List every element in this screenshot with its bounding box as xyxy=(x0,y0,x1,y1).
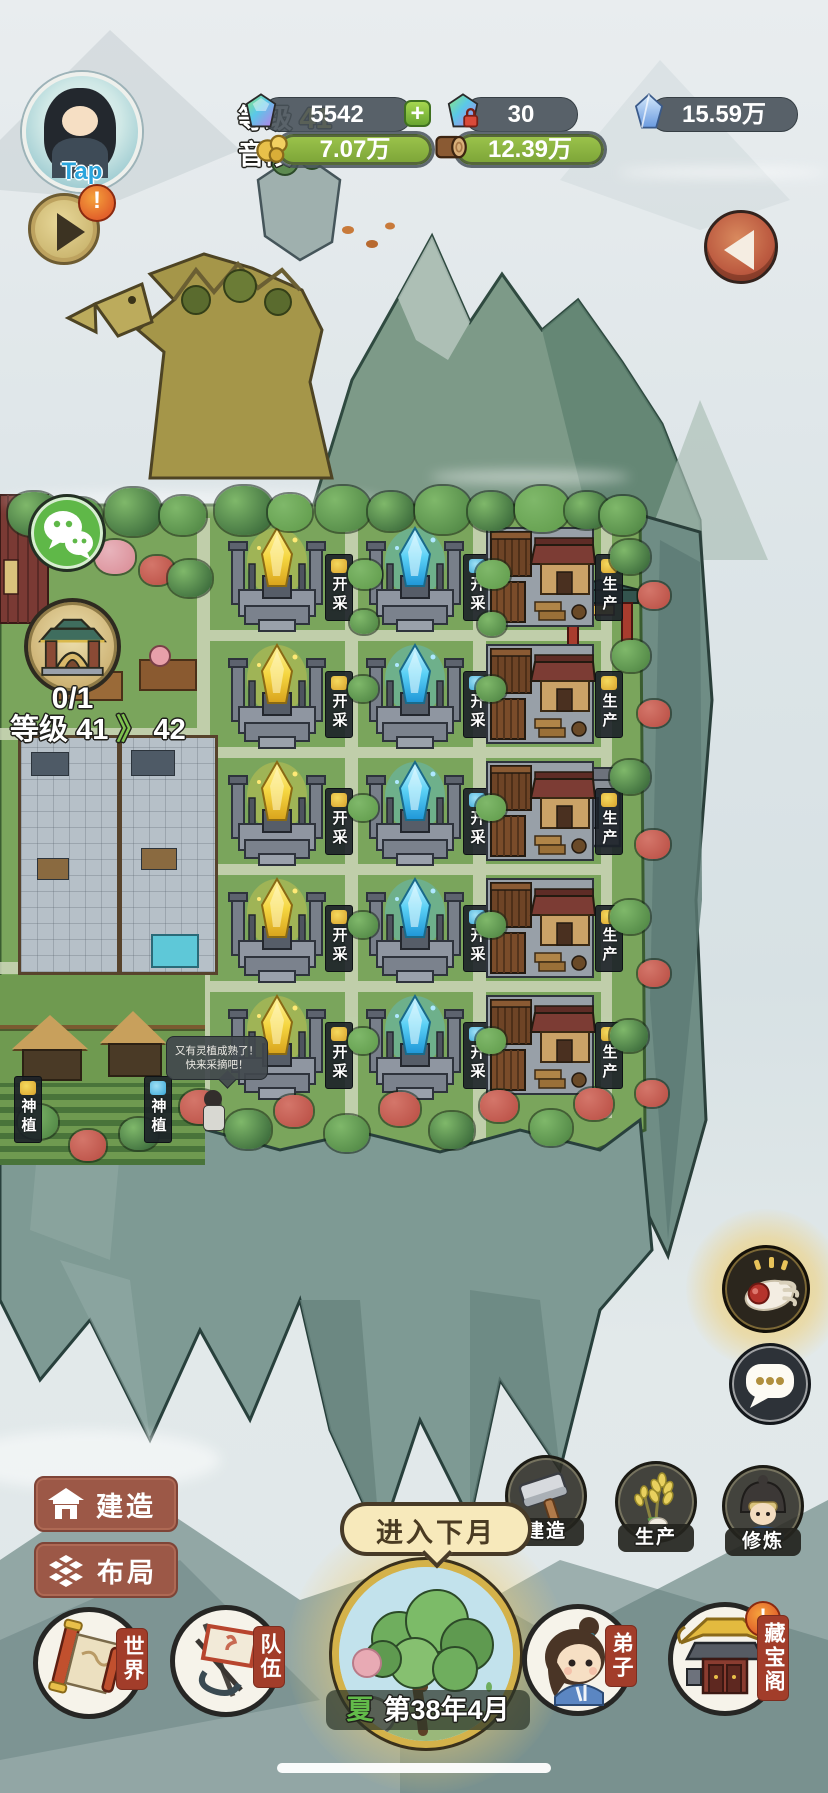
npc-dialogue-bubble: 又有灵植成熟了！ 快来采摘吧！ xyxy=(166,1036,268,1080)
plant-icon xyxy=(20,1081,36,1095)
npc-dialogue-line1: 又有灵植成熟了！ xyxy=(167,1044,267,1058)
gold-ore-icon xyxy=(331,559,347,573)
mine-shrine-blue[interactable]: 开采 xyxy=(355,986,485,1102)
mine-shrine-blue[interactable]: 开采 xyxy=(355,518,485,634)
gold-ore-icon xyxy=(331,676,347,690)
mine-banner: 开采 xyxy=(325,554,353,621)
taptap-logo: Tap xyxy=(26,158,138,186)
gem-icon xyxy=(242,92,280,130)
poke-pet-button[interactable] xyxy=(722,1245,810,1333)
mine-shrine-blue[interactable]: 开采 xyxy=(355,752,485,868)
map-row: 开采 开采 生产 xyxy=(0,869,828,985)
next-month-button[interactable]: 进入下月 xyxy=(340,1502,532,1556)
back-button[interactable] xyxy=(704,210,778,284)
produce-banner: 生产 xyxy=(595,554,623,621)
wechat-icon xyxy=(31,497,103,569)
npc-villager[interactable] xyxy=(200,1090,226,1130)
gold-ore-icon xyxy=(254,128,290,164)
gem-ore-icon xyxy=(469,559,485,573)
nav-disciple-label: 弟子 xyxy=(605,1625,637,1687)
game-date: 夏第38年4月 xyxy=(326,1690,530,1730)
crystal-icon xyxy=(630,92,668,130)
production-hall[interactable]: 生产 xyxy=(485,518,615,634)
build-menu-button[interactable]: 建造 xyxy=(34,1476,178,1532)
nav-team-button[interactable]: 队伍 xyxy=(170,1605,282,1717)
wood-counter: 12.39万 xyxy=(456,134,604,165)
produce-banner: 生产 xyxy=(595,788,623,855)
gold-ore-icon xyxy=(331,793,347,807)
chat-bubble-icon xyxy=(732,1346,808,1422)
production-hall[interactable]: 生产 xyxy=(485,869,615,985)
player-avatar[interactable]: Tap xyxy=(22,72,142,192)
add-gems-button[interactable]: + xyxy=(404,100,431,127)
nav-treasure-button[interactable]: ! 藏宝阁 xyxy=(668,1602,782,1716)
chat-button[interactable] xyxy=(729,1343,811,1425)
layout-menu-label: 布局 xyxy=(97,1551,157,1590)
map-row: 开采 开采 生产 xyxy=(0,986,828,1102)
plant-banner: 神植 xyxy=(144,1076,172,1143)
nav-disciple-button[interactable]: 弟子 xyxy=(522,1604,634,1716)
map-row: 开采 开采 生产 xyxy=(0,752,828,868)
alert-badge: ! xyxy=(78,184,116,222)
plant-icon xyxy=(150,1081,166,1095)
production-hall[interactable]: 生产 xyxy=(485,635,615,751)
layout-menu-button[interactable]: 布局 xyxy=(34,1542,178,1598)
gem-ore-icon xyxy=(469,1027,485,1041)
mine-banner: 开采 xyxy=(325,905,353,972)
chevron-right-icon: 》 xyxy=(116,714,145,746)
plant-banner: 神植 xyxy=(14,1076,42,1143)
game-screen: 神植 神植 开采 开采 xyxy=(0,0,828,1793)
mine-banner: 开采 xyxy=(325,1022,353,1089)
mine-shrine-blue[interactable]: 开采 xyxy=(355,869,485,985)
house-icon xyxy=(46,1486,86,1522)
mine-shrine-blue[interactable]: 开采 xyxy=(355,635,485,751)
hand-orb-icon xyxy=(725,1248,807,1330)
action-cultivate-label: 修炼 xyxy=(725,1528,801,1556)
nav-world-button[interactable]: 世界 xyxy=(33,1607,145,1719)
goods-icon xyxy=(601,559,617,573)
map-row: 开采 开采 生产 xyxy=(0,518,828,634)
nav-world-label: 世界 xyxy=(116,1628,148,1690)
gem-ore-icon xyxy=(469,793,485,807)
production-hall[interactable]: 生产 xyxy=(485,986,615,1102)
goods-icon xyxy=(601,910,617,924)
back-arrow-icon xyxy=(724,230,754,270)
gem-ore-icon xyxy=(469,676,485,690)
mine-shrine-gold[interactable]: 开采 xyxy=(205,518,355,634)
layout-grid-icon xyxy=(45,1553,87,1587)
produce-banner: 生产 xyxy=(595,671,623,738)
goods-icon xyxy=(601,793,617,807)
production-hall[interactable]: 生产 xyxy=(485,752,615,868)
build-menu-label: 建造 xyxy=(96,1485,156,1524)
wechat-button[interactable] xyxy=(28,494,106,572)
season-label: 夏 xyxy=(346,1695,373,1725)
temple-quest-button[interactable] xyxy=(24,598,121,695)
gold-ore-icon xyxy=(331,1027,347,1041)
gems-counter: 5542 xyxy=(262,97,412,132)
gold-ore-counter: 7.07万 xyxy=(278,134,432,165)
home-indicator[interactable] xyxy=(277,1763,551,1773)
action-produce-label: 生产 xyxy=(618,1524,694,1552)
produce-banner: 生产 xyxy=(595,1022,623,1089)
mine-shrine-gold[interactable]: 开采 xyxy=(205,635,355,751)
mine-banner: 开采 xyxy=(325,671,353,738)
crystal-counter: 15.59万 xyxy=(650,97,798,132)
gold-ore-icon xyxy=(331,910,347,924)
locked-gem-icon xyxy=(444,92,482,130)
mine-shrine-gold[interactable]: 开采 xyxy=(205,752,355,868)
avatar-face xyxy=(62,106,98,136)
mine-banner: 开采 xyxy=(325,788,353,855)
level-progress: 等级 41 》 42 xyxy=(10,706,186,748)
npc-dialogue-line2: 快来采摘吧！ xyxy=(167,1058,267,1072)
nav-treasure-label: 藏宝阁 xyxy=(757,1615,789,1701)
temple-icon xyxy=(28,602,117,691)
gem-ore-icon xyxy=(469,910,485,924)
date-label: 第38年4月 xyxy=(383,1695,509,1725)
play-icon xyxy=(57,213,85,251)
produce-banner: 生产 xyxy=(595,905,623,972)
goods-icon xyxy=(601,1027,617,1041)
nav-team-label: 队伍 xyxy=(253,1626,285,1688)
wood-icon xyxy=(432,128,468,164)
goods-icon xyxy=(601,676,617,690)
mine-shrine-gold[interactable]: 开采 xyxy=(205,869,355,985)
